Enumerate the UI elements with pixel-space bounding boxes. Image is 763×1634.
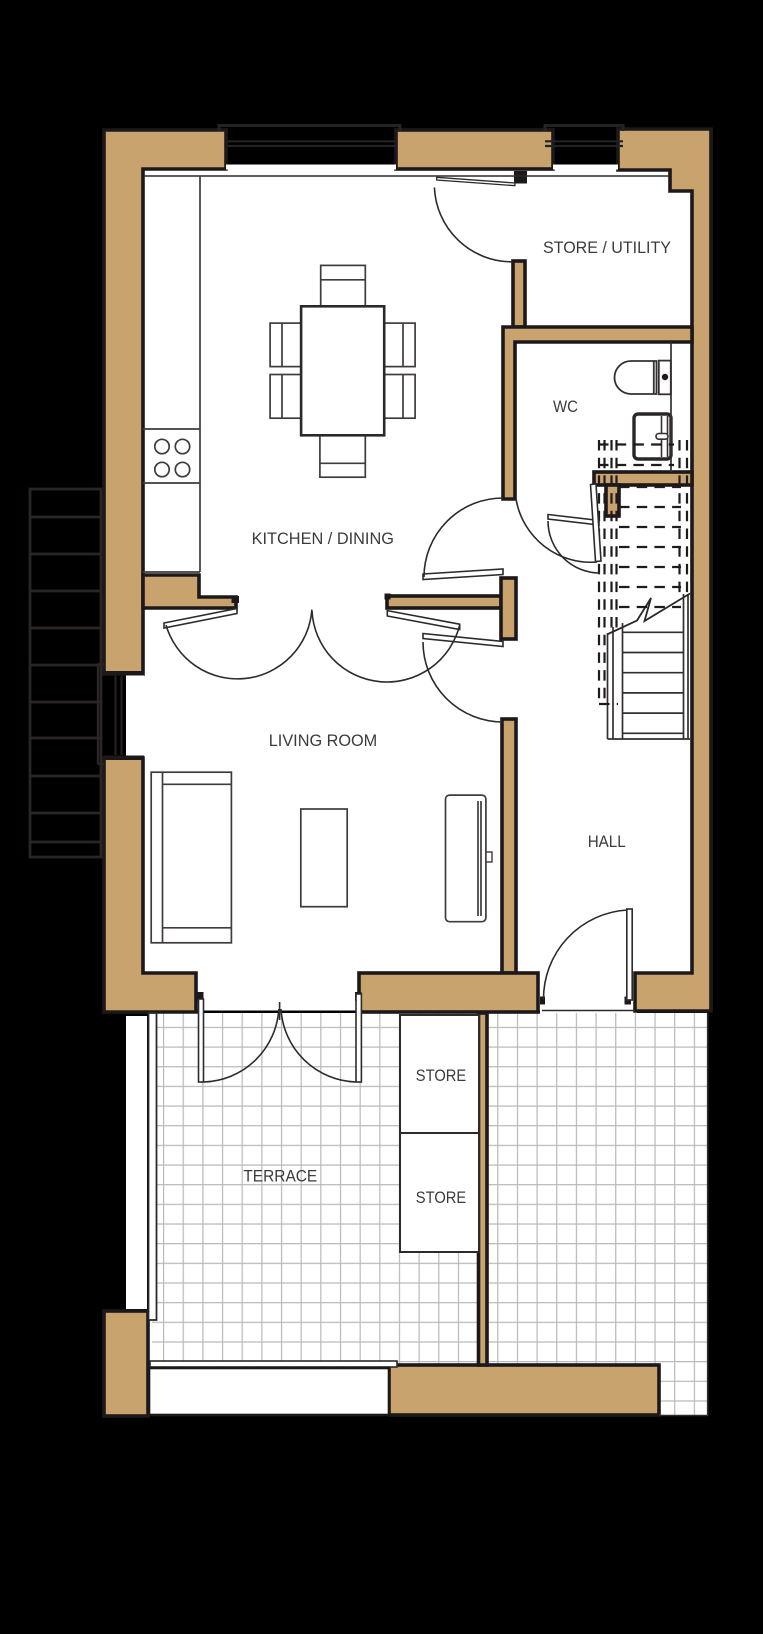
- svg-text:STORE / UTILITY: STORE / UTILITY: [543, 238, 671, 257]
- svg-text:HALL: HALL: [588, 832, 626, 851]
- svg-text:LIVING ROOM: LIVING ROOM: [269, 731, 378, 750]
- svg-text:STORE: STORE: [416, 1188, 466, 1207]
- svg-text:KITCHEN / DINING: KITCHEN / DINING: [252, 529, 394, 548]
- svg-text:TERRACE: TERRACE: [243, 1167, 317, 1186]
- svg-text:WC: WC: [553, 397, 578, 416]
- svg-text:STORE: STORE: [416, 1066, 466, 1085]
